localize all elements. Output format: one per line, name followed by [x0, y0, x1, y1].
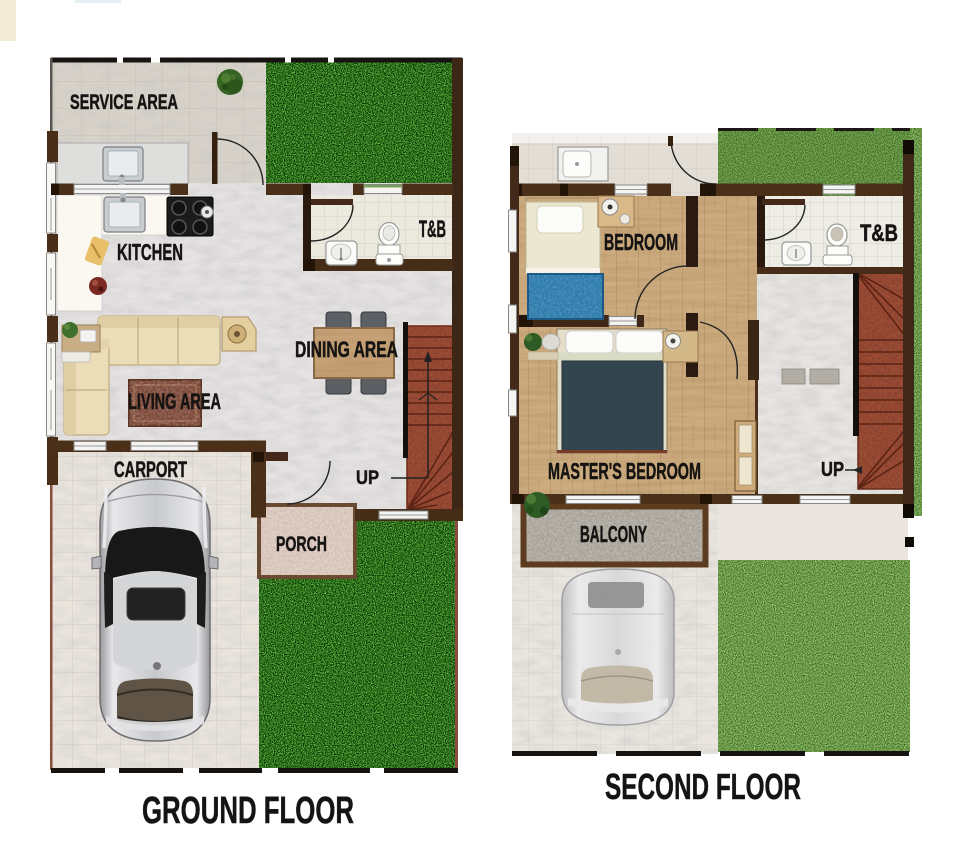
svg-text:SERVICE AREA: SERVICE AREA [70, 91, 178, 114]
svg-text:UP: UP [821, 459, 844, 481]
svg-text:GROUND FLOOR: GROUND FLOOR [142, 790, 354, 832]
svg-text:DINING AREA: DINING AREA [295, 337, 398, 362]
svg-text:LIVING AREA: LIVING AREA [128, 389, 221, 414]
svg-text:KITCHEN: KITCHEN [117, 239, 183, 265]
svg-text:MASTER'S BEDROOM: MASTER'S BEDROOM [548, 458, 701, 484]
svg-text:PORCH: PORCH [276, 533, 327, 556]
svg-text:UP: UP [356, 468, 379, 489]
svg-text:SECOND FLOOR: SECOND FLOOR [605, 766, 801, 807]
svg-text:T&B: T&B [419, 216, 446, 243]
svg-text:BALCONY: BALCONY [580, 521, 647, 547]
svg-text:T&B: T&B [860, 220, 898, 247]
svg-text:CARPORT: CARPORT [114, 457, 187, 482]
svg-text:BEDROOM: BEDROOM [604, 229, 678, 255]
